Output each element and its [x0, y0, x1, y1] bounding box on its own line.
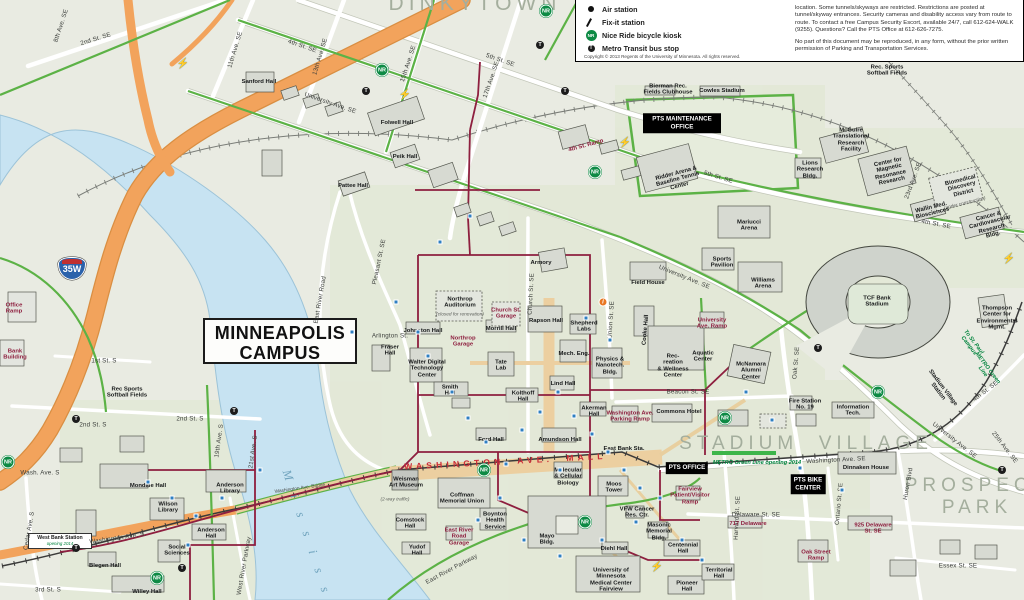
campus-map: DINKYTOWN STADIUM VILLAGE PROSPECT PARK …	[0, 0, 1024, 600]
map-canvas	[0, 0, 1024, 600]
